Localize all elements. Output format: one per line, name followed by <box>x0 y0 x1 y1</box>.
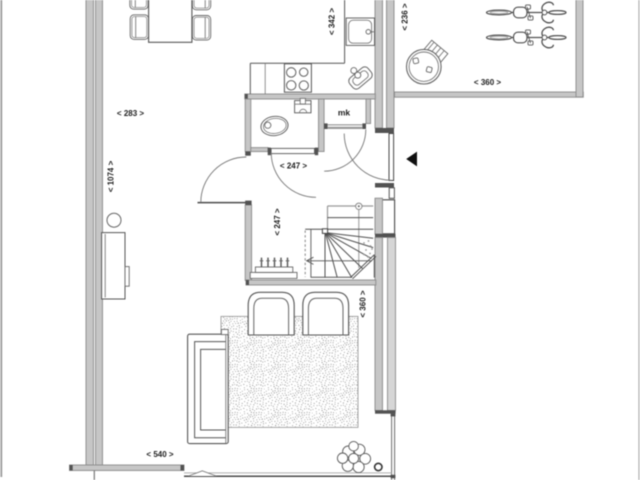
svg-text:< 236 >: < 236 > <box>401 3 410 30</box>
svg-text:< 360 >: < 360 > <box>474 78 501 87</box>
svg-text:< 360 >: < 360 > <box>359 290 368 317</box>
svg-text:< 283 >: < 283 > <box>117 109 144 118</box>
svg-text:mk: mk <box>338 107 351 117</box>
svg-text:< 247 >: < 247 > <box>280 162 307 171</box>
svg-text:< 540 >: < 540 > <box>146 450 173 459</box>
svg-text:< 247 >: < 247 > <box>273 208 282 235</box>
svg-text:< 342 >: < 342 > <box>328 8 337 35</box>
svg-text:< 1074 >: < 1074 > <box>106 160 115 192</box>
